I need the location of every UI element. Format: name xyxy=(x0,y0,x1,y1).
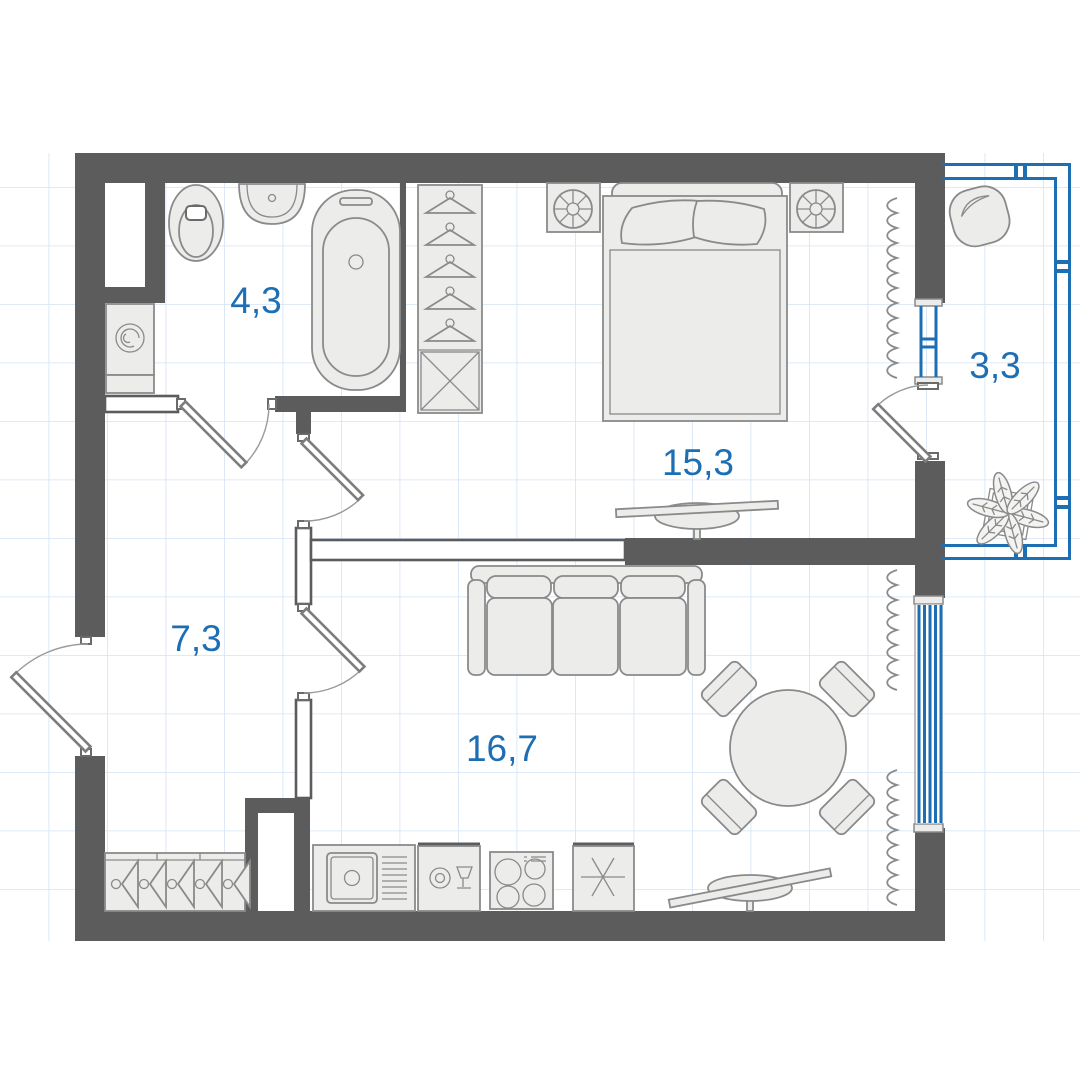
mullion-icon xyxy=(1023,163,1027,180)
pillow xyxy=(693,201,765,245)
wardrobe xyxy=(418,185,482,413)
fridge xyxy=(573,844,634,911)
sofa-seat xyxy=(620,598,686,675)
mullion-icon xyxy=(1054,269,1070,273)
wall-right-middle xyxy=(915,461,945,598)
nightstand-right xyxy=(790,183,843,232)
mullion-icon xyxy=(1054,260,1070,264)
sofa-back-cushion xyxy=(621,576,685,598)
pillow xyxy=(621,200,701,244)
sofa xyxy=(468,566,705,675)
mullion-icon xyxy=(1054,505,1070,509)
floor-plan: 4,3 15,3 3,3 7,3 16,7 xyxy=(0,0,1080,1080)
stove xyxy=(490,852,553,909)
sofa-back-cushion xyxy=(487,576,551,598)
mullion-icon xyxy=(1054,496,1070,500)
door-jamb xyxy=(298,693,309,700)
wall-top xyxy=(75,153,945,183)
sofa-back-cushion xyxy=(554,576,618,598)
double-bed xyxy=(603,183,787,421)
wall-right-lower xyxy=(915,828,945,941)
room-area-label-bedroom: 15,3 xyxy=(662,442,734,483)
faucet-icon xyxy=(340,198,372,205)
sofa-seat xyxy=(487,598,552,675)
room-area-label-bathroom: 4,3 xyxy=(230,280,281,321)
bathtub xyxy=(312,190,400,390)
washing-machine xyxy=(106,304,154,393)
wall-hall-post-upper xyxy=(296,528,311,604)
sofa-seat xyxy=(553,598,618,675)
mullion-icon xyxy=(1014,163,1018,180)
room-area-label-balcony: 3,3 xyxy=(969,345,1020,386)
window-sill xyxy=(915,299,942,306)
wall-bedroom-living-thin xyxy=(311,540,625,560)
table-lamp-icon xyxy=(554,190,592,228)
duct-shaft-bottom xyxy=(258,813,294,911)
duct-shaft-top xyxy=(105,183,145,287)
sofa-armrest xyxy=(688,580,705,675)
duct-frame-right xyxy=(145,183,165,303)
wall-hall-post-lower xyxy=(296,700,311,798)
kitchen-sink-unit xyxy=(313,845,415,911)
wall-left-upper xyxy=(75,153,105,637)
wall-bathroom-bottom-left xyxy=(105,396,178,412)
nightstand-left xyxy=(547,183,600,232)
toilet xyxy=(169,185,223,261)
room-area-label-hallway: 7,3 xyxy=(170,618,221,659)
floor-plan-page: 4,3 15,3 3,3 7,3 16,7 xyxy=(0,0,1080,1080)
table-lamp-icon xyxy=(797,190,835,228)
living-window xyxy=(914,596,943,832)
wall-bedroom-living-thick xyxy=(625,538,945,565)
round-dining-table xyxy=(730,690,846,806)
wall-right-upper xyxy=(915,153,945,303)
door-jamb xyxy=(298,521,309,528)
room-area-label-living-kitchen: 16,7 xyxy=(466,728,538,769)
mullion-icon xyxy=(1023,544,1027,559)
window-sill xyxy=(914,596,943,604)
wall-hall-stub xyxy=(296,412,311,434)
sofa-armrest xyxy=(468,580,485,675)
duct-frame-bottom xyxy=(105,287,145,303)
wall-bathroom-bottom-right xyxy=(275,396,406,412)
door-jamb xyxy=(81,637,91,644)
coat-rack xyxy=(105,853,250,911)
wall-bottom xyxy=(75,911,945,941)
dishwasher xyxy=(418,844,480,911)
window-sill xyxy=(914,824,943,832)
